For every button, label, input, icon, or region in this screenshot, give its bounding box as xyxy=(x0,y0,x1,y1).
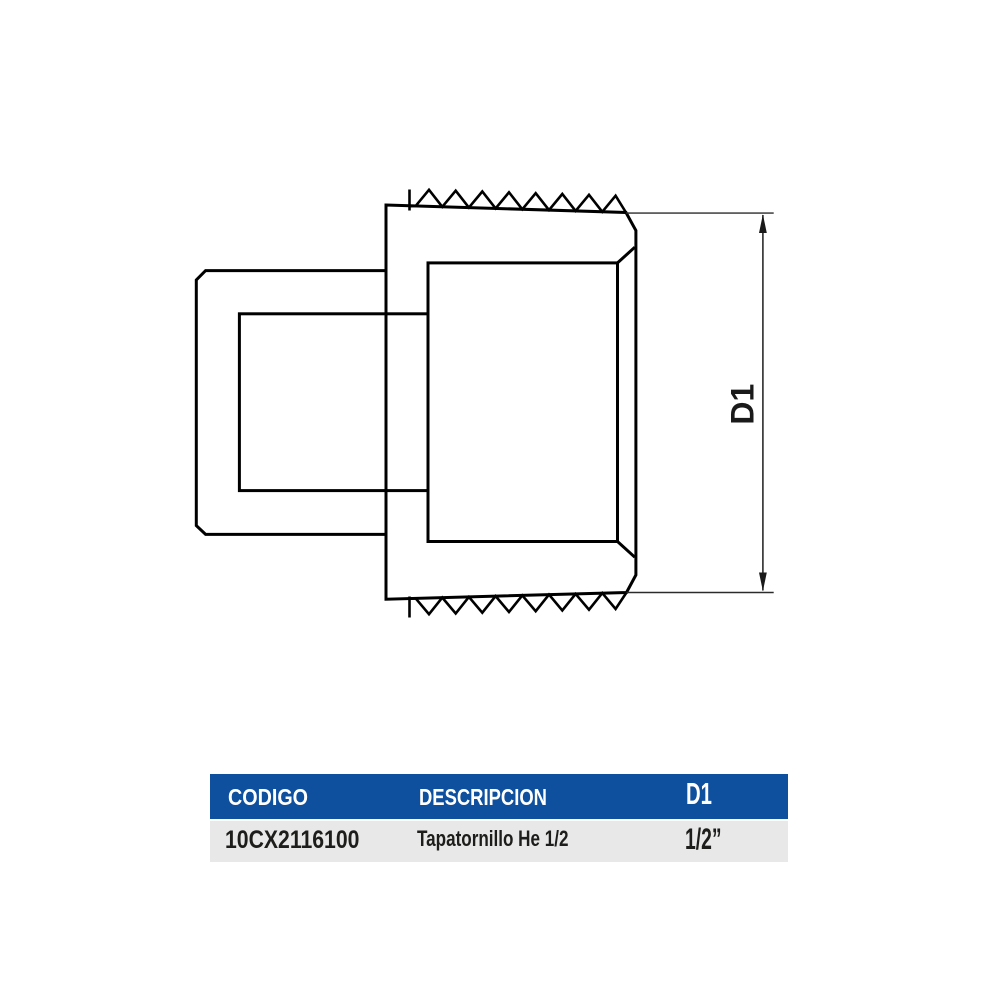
svg-text:D1: D1 xyxy=(725,384,761,425)
